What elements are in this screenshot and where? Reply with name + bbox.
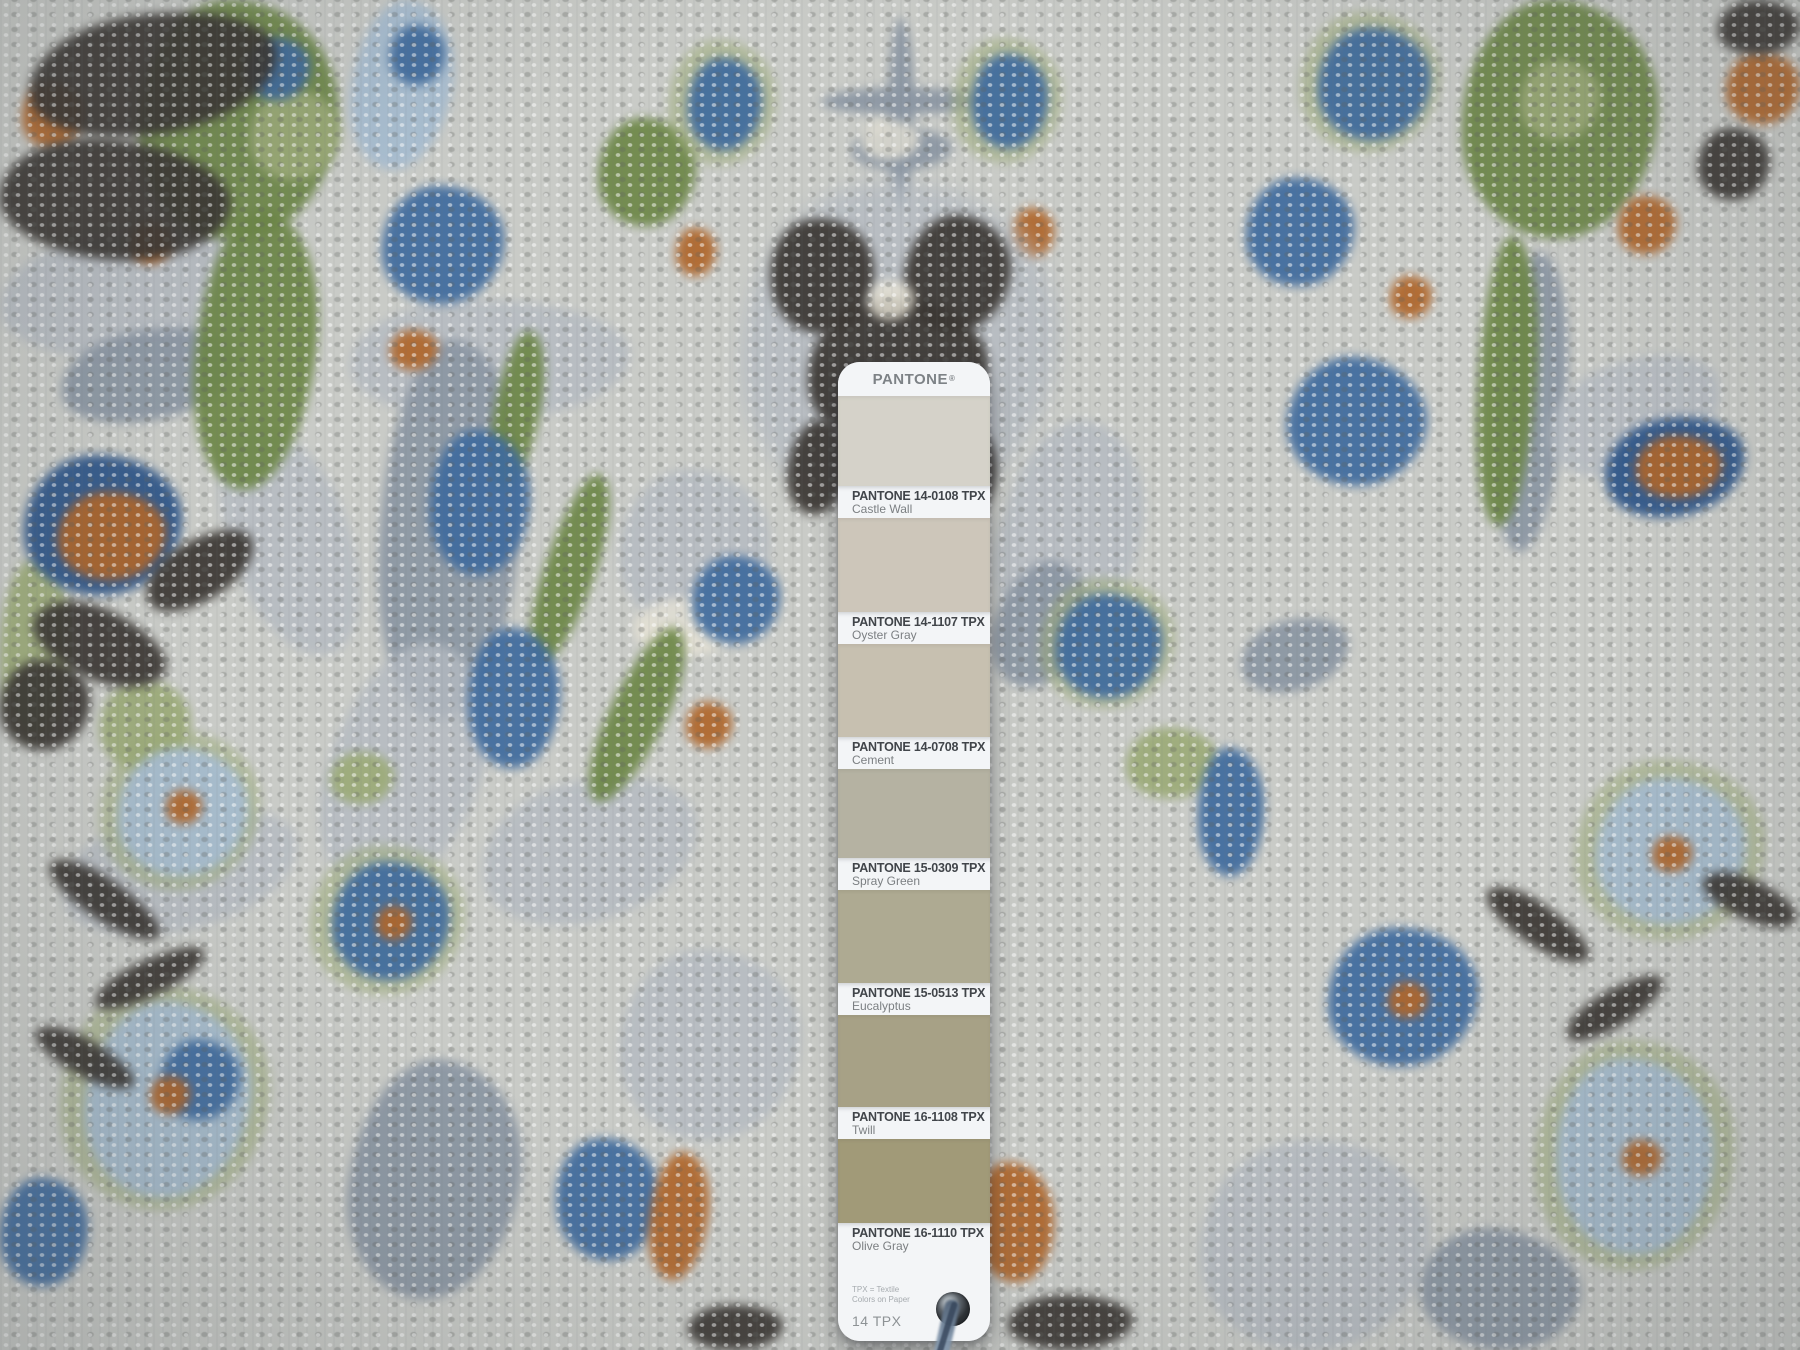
pantone-chip: PANTONE 14-0108 TPX Castle Wall <box>838 396 990 518</box>
tpx-note-line1: TPX = Textile <box>852 1285 990 1295</box>
color-swatch <box>838 396 990 486</box>
pantone-chip: PANTONE 14-1107 TPX Oyster Gray <box>838 518 990 644</box>
chip-label: PANTONE 14-0108 TPX Castle Wall <box>838 486 990 518</box>
chip-label: PANTONE 16-1110 TPX Olive Gray <box>838 1223 990 1255</box>
chip-name: Olive Gray <box>852 1240 990 1253</box>
pantone-chip: PANTONE 15-0309 TPX Spray Green <box>838 769 990 890</box>
color-swatch <box>838 644 990 737</box>
pantone-chip: PANTONE 16-1108 TPX Twill <box>838 1015 990 1139</box>
color-swatch <box>838 890 990 983</box>
chip-name: Castle Wall <box>852 503 990 516</box>
chip-code: PANTONE 16-1110 TPX <box>852 1226 990 1240</box>
pantone-chip: PANTONE 15-0513 TPX Eucalyptus <box>838 890 990 1015</box>
chip-label: PANTONE 15-0513 TPX Eucalyptus <box>838 983 990 1015</box>
pantone-brand-text: PANTONE <box>873 371 948 388</box>
chip-code: PANTONE 15-0309 TPX <box>852 861 990 875</box>
color-swatch <box>838 1015 990 1107</box>
chip-label: PANTONE 14-0708 TPX Cement <box>838 737 990 769</box>
color-swatch <box>838 1139 990 1223</box>
color-swatch <box>838 518 990 612</box>
photo-of-rug-with-pantone-strip: PANTONE® PANTONE 14-0108 TPX Castle Wall… <box>0 0 1800 1350</box>
chip-name: Cement <box>852 754 990 767</box>
chip-code: PANTONE 15-0513 TPX <box>852 986 990 1000</box>
registered-trademark-symbol: ® <box>949 375 955 383</box>
chip-code: PANTONE 14-1107 TPX <box>852 615 990 629</box>
pantone-chip: PANTONE 14-0708 TPX Cement <box>838 644 990 769</box>
pantone-brand-header: PANTONE® <box>838 362 990 396</box>
color-swatch <box>838 769 990 858</box>
chip-name: Spray Green <box>852 875 990 888</box>
chip-label: PANTONE 14-1107 TPX Oyster Gray <box>838 612 990 644</box>
chip-code: PANTONE 14-0708 TPX <box>852 740 990 754</box>
deck-count-label: 14 TPX <box>852 1313 990 1329</box>
chip-name: Twill <box>852 1124 990 1137</box>
pantone-color-strip: PANTONE® PANTONE 14-0108 TPX Castle Wall… <box>838 362 990 1341</box>
chip-label: PANTONE 16-1108 TPX Twill <box>838 1107 990 1139</box>
chip-name: Eucalyptus <box>852 1000 990 1013</box>
pantone-chip: PANTONE 16-1110 TPX Olive Gray <box>838 1139 990 1255</box>
chip-label: PANTONE 15-0309 TPX Spray Green <box>838 858 990 890</box>
chip-name: Oyster Gray <box>852 629 990 642</box>
chip-code: PANTONE 16-1108 TPX <box>852 1110 990 1124</box>
chip-code: PANTONE 14-0108 TPX <box>852 489 990 503</box>
pantone-card-footer: TPX = Textile Colors on Paper 14 TPX <box>838 1255 990 1341</box>
